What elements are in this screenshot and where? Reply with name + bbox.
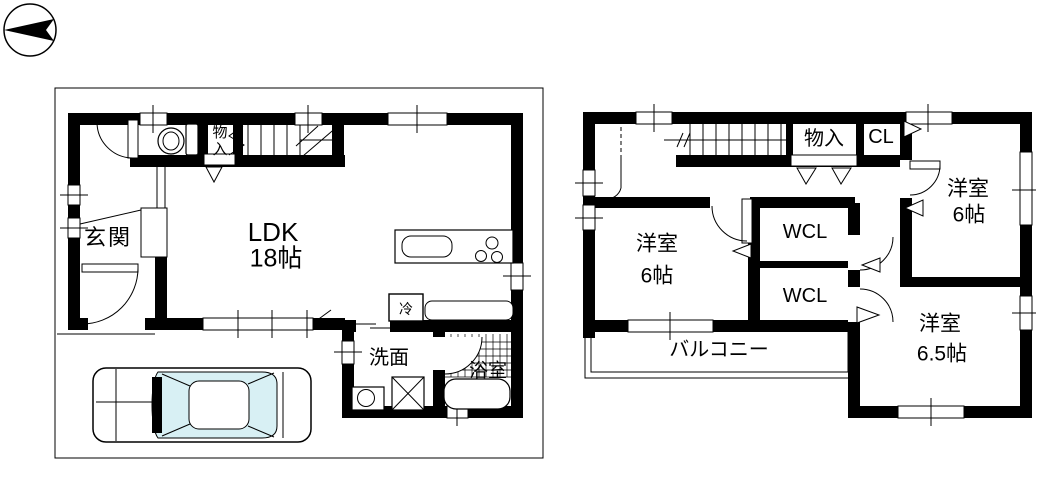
storage-door-mark xyxy=(797,168,816,184)
bedroom-ne-door-leaf xyxy=(910,161,940,169)
floorplan-page: 玄関 LDK 18帖 物入 冷 洗面 浴室 物入 CL 洋室 6帖 WCL WC… xyxy=(0,0,1037,480)
car-icon xyxy=(93,368,311,442)
label-wcl-lower: WCL xyxy=(783,286,827,306)
window xyxy=(1020,152,1032,225)
label-wcl-upper: WCL xyxy=(783,222,827,242)
window xyxy=(203,318,313,330)
label-refrigerator: 冷 xyxy=(399,302,413,316)
toilet-icon xyxy=(158,124,198,155)
entrance-door-leaf xyxy=(82,264,138,272)
label-storage-1f: 物入 xyxy=(212,124,227,158)
stove-burner-icon xyxy=(486,237,498,249)
label-storage-2f: 物入 xyxy=(804,129,844,149)
entrance-door-opening xyxy=(88,318,145,330)
entrance-door-arc xyxy=(82,268,138,324)
door-swing-mark xyxy=(857,307,879,323)
label-closet: CL xyxy=(868,127,894,147)
counter-icon xyxy=(425,301,513,320)
label-bedroom-se-size: 6.5帖 xyxy=(917,344,967,365)
bedroom-w-door-leaf xyxy=(742,199,752,243)
stairs-2f-icon xyxy=(664,124,790,155)
entrance-step-line xyxy=(80,210,141,224)
label-ldk: LDK xyxy=(248,219,299,245)
floor1-plan xyxy=(55,88,543,458)
storage-door-mark xyxy=(206,167,222,182)
label-ldk-size: 18帖 xyxy=(250,247,303,272)
washing-machine-icon xyxy=(392,377,424,410)
storage-door-mark xyxy=(832,168,851,184)
label-entrance: 玄関 xyxy=(84,227,132,249)
kitchen-counter-icon xyxy=(395,230,513,263)
floorplan-drawing xyxy=(0,0,1037,480)
toilet-door-leaf xyxy=(128,120,138,158)
window xyxy=(906,112,952,124)
stove-burner-icon xyxy=(492,252,503,263)
bathtub-icon xyxy=(444,379,510,409)
door-swing-mark xyxy=(733,244,751,258)
label-balcony: バルコニー xyxy=(669,340,769,360)
north-arrow-icon xyxy=(4,4,56,56)
storage-door-leaf xyxy=(791,155,857,166)
label-bedroom-w: 洋室 xyxy=(636,234,678,255)
kitchen-sink-icon xyxy=(402,236,452,257)
label-washroom: 洗面 xyxy=(369,348,409,368)
wash-basin-icon xyxy=(352,387,384,410)
label-bathroom: 浴室 xyxy=(469,362,507,381)
shoe-cabinet-icon xyxy=(141,208,167,257)
stove-burner-icon xyxy=(476,251,487,262)
label-bedroom-ne: 洋室 xyxy=(947,179,989,200)
bath-door-opening xyxy=(433,337,445,370)
label-bedroom-w-size: 6帖 xyxy=(641,266,674,287)
label-bedroom-se: 洋室 xyxy=(919,314,961,335)
washroom-door-opening xyxy=(356,320,390,332)
doors-2f xyxy=(603,121,940,323)
label-bedroom-ne-size: 6帖 xyxy=(953,205,986,226)
